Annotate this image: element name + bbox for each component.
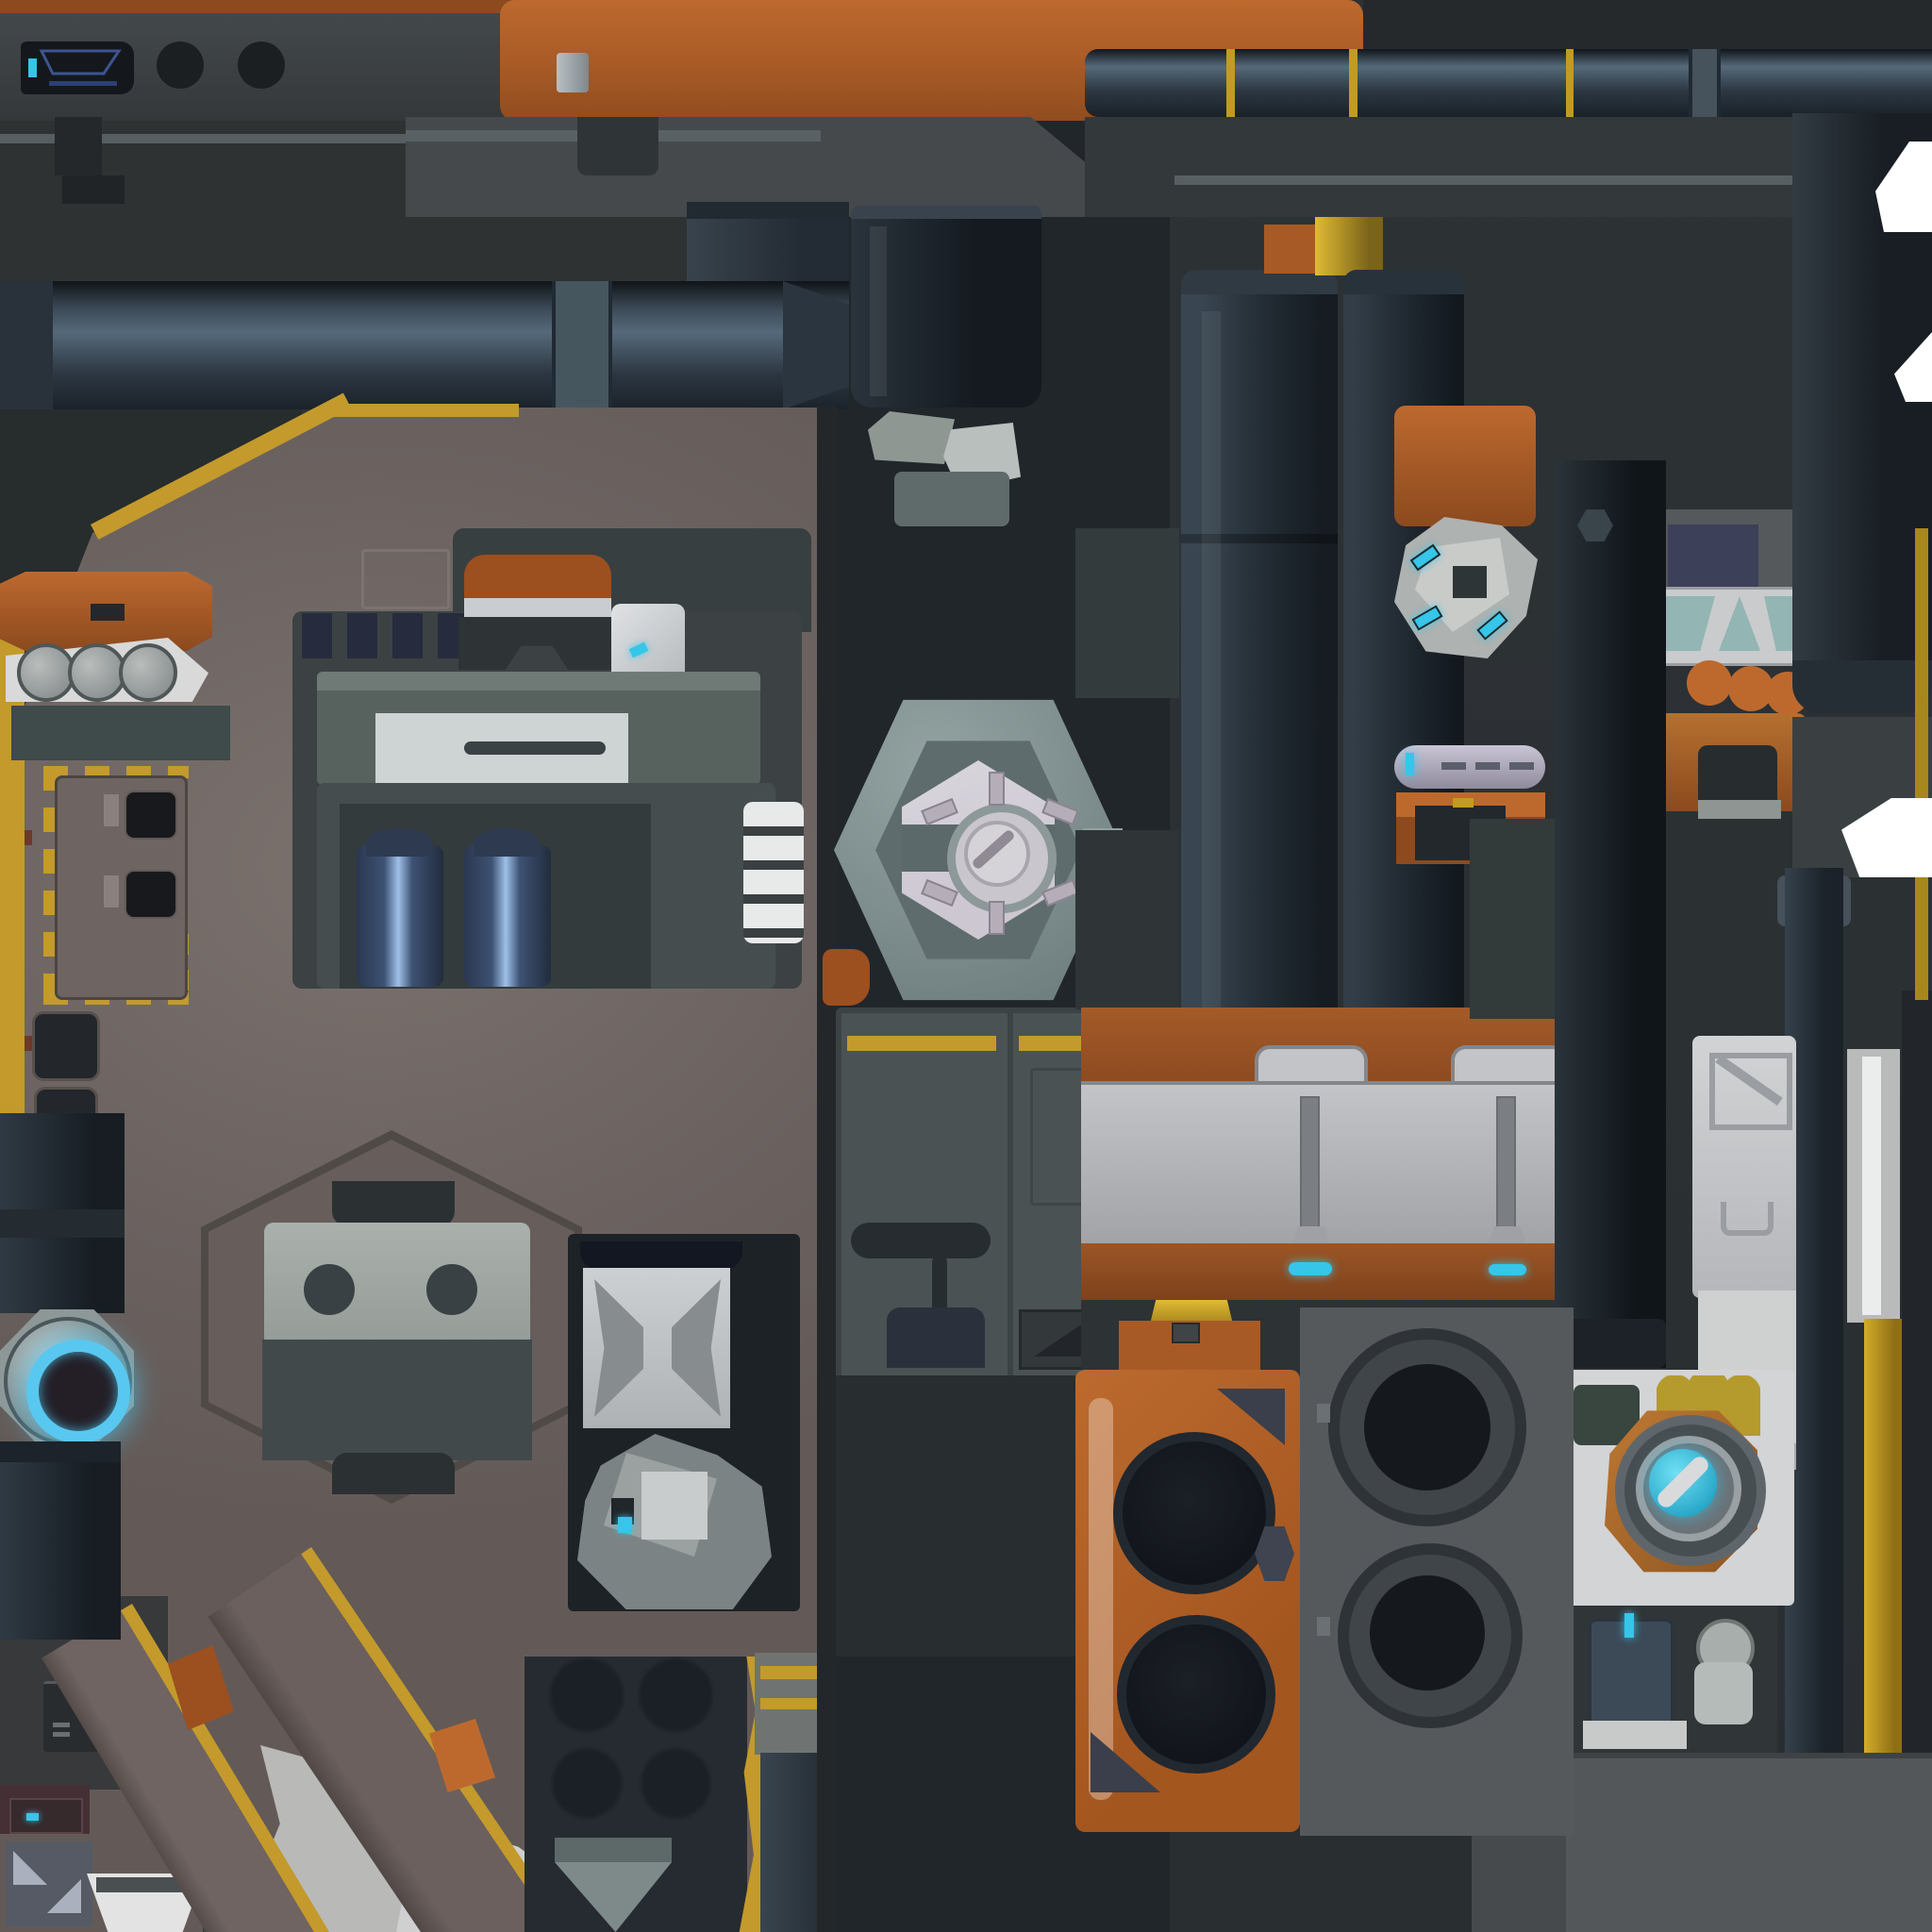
port-square [32,1011,100,1081]
orange-blob [823,949,870,1006]
mech-bit [894,472,1009,526]
hatch-screw [964,821,1030,887]
hazard-top-strip [330,404,519,417]
pipe-gold-band [1566,49,1574,117]
coolant-canister [464,845,551,987]
orange-mount [1394,406,1536,526]
panel-step-block [62,175,125,204]
band-led [1289,1262,1332,1275]
orange-chip [1264,225,1319,274]
funnel-collar [555,1838,672,1862]
duct-sheen [870,226,887,396]
port-slot [104,875,119,908]
pipe-flange [1689,49,1721,117]
speaker-hole [1113,1432,1275,1594]
rock-white-box [641,1472,708,1540]
mech-bit [868,411,955,464]
capsule-dash [1509,762,1534,770]
door-handle [851,1223,991,1258]
capsule-led [1406,753,1414,775]
device-tray [1583,1721,1687,1749]
rock-led [618,1517,632,1533]
panel-knob [238,42,285,89]
right-fill-a [1075,528,1179,698]
border-tick [25,1036,32,1051]
channel-rail-inner [1862,1057,1881,1315]
duct-end-cap [0,281,53,409]
duct-flange [552,281,612,409]
hex-machine-bottom-notch [332,1453,455,1494]
cargo-clasp [1453,798,1474,808]
band-led [1489,1264,1526,1275]
puck [119,643,177,702]
pipe-end-cap [1792,660,1932,713]
drawer-led [26,1813,39,1821]
device-led [1624,1613,1634,1638]
bottom-center-fill [836,1657,1075,1932]
hatch-groove [1496,1096,1516,1232]
port-square [125,791,177,840]
pipe-gold-band [1349,49,1357,117]
bracket-knuckle [1687,660,1732,706]
hex-machine-top-notch [332,1181,455,1226]
puck-shelf [11,706,230,760]
window-navy-block [1668,525,1758,591]
vertical-pipe-2 [1343,294,1464,1026]
riser-flange [0,1209,125,1238]
left-riser-pipe-lower [0,1441,121,1640]
knob-cylinder-body [1694,1662,1753,1724]
slab-tab [577,117,658,175]
below-doors-fill [836,1375,1075,1658]
texture-atlas [0,0,1932,1932]
crate-top-shadow [580,1241,742,1270]
gold-banded-pipe [1085,49,1932,117]
machine-eye [304,1264,355,1315]
room-arch [464,555,611,602]
panel-step-block [55,117,102,175]
cabinet-slot [53,1723,70,1727]
drawer-face [9,1798,83,1834]
neck-clasp [1172,1323,1200,1343]
cluster-dark-bit [1453,566,1487,598]
vent-grille [21,42,134,94]
port-stud [1317,1404,1330,1423]
capsule-dash [1475,762,1500,770]
canister-cap [474,828,540,857]
striped-barrel [743,802,804,943]
gold-sliver [1915,528,1928,1000]
panel-knob [157,42,204,89]
port-square [125,870,177,919]
header-cylinder [557,53,589,92]
bracket-lip [1698,800,1781,819]
center-gap-strip [817,406,838,1932]
hatch-slot [989,772,1005,806]
speaker-hole [1117,1615,1275,1774]
z-handle [1721,1202,1774,1236]
duct-cap-band [687,202,849,219]
machine-eye [426,1264,477,1315]
door-hood [887,1307,985,1368]
door-stripe [847,1036,996,1051]
pipe-sheen [1202,311,1221,1009]
border-tick [25,830,32,845]
cabinet-slot [53,1732,70,1737]
riser-band [0,1441,121,1462]
puck [17,643,75,702]
main-horizontal-duct [0,281,849,409]
pipe-gold-band [1226,49,1235,117]
hatch-groove [1300,1096,1320,1232]
port-core [1370,1575,1485,1690]
glow-ring [26,1340,130,1443]
gold-elbow [1315,217,1383,275]
coolant-canister [357,845,443,987]
floor-plate [1558,1753,1932,1932]
puck [68,643,126,702]
wall-square-outline [361,549,450,609]
hex-machine-body [262,1340,532,1460]
room-teeth [302,613,472,658]
port-slot [104,794,119,826]
right-fill-b [1075,830,1179,1009]
port-stud [1317,1617,1330,1636]
bracket-slot [91,604,125,621]
top-right-dark-fill [1363,0,1932,55]
shelf-rail [1174,175,1797,185]
port-core [1364,1364,1491,1491]
dark-column-pipe [1555,460,1666,1368]
console-slot [464,741,606,755]
bulkhead-band-bottom [1081,1243,1606,1300]
canister-cap [366,828,432,857]
capsule-dash [1441,762,1466,770]
hatch-slot [989,901,1005,935]
floor-plate-side [1472,1830,1566,1932]
vent-grille-glyph [21,42,134,94]
